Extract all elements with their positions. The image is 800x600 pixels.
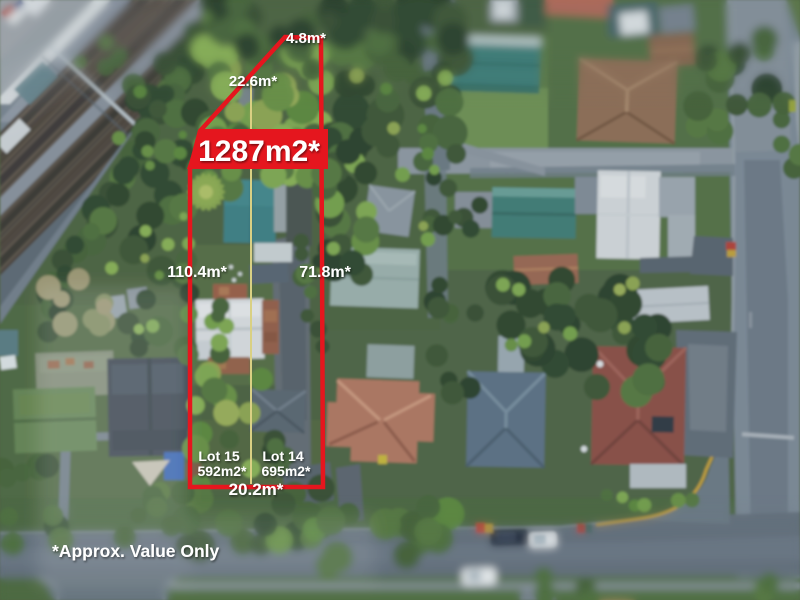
svg-text:Lot 14: Lot 14 — [262, 448, 303, 464]
svg-text:22.6m*: 22.6m* — [229, 73, 278, 90]
svg-text:592m2*: 592m2* — [197, 463, 247, 479]
svg-text:20.2m*: 20.2m* — [229, 480, 284, 499]
svg-text:71.8m*: 71.8m* — [299, 264, 351, 281]
svg-text:*Approx. Value Only: *Approx. Value Only — [52, 541, 220, 561]
svg-text:695m2*: 695m2* — [261, 463, 311, 479]
svg-text:4.8m*: 4.8m* — [286, 30, 326, 47]
svg-text:Lot 15: Lot 15 — [198, 448, 239, 464]
svg-text:1287m2*: 1287m2* — [198, 135, 320, 168]
svg-text:110.4m*: 110.4m* — [167, 264, 227, 281]
